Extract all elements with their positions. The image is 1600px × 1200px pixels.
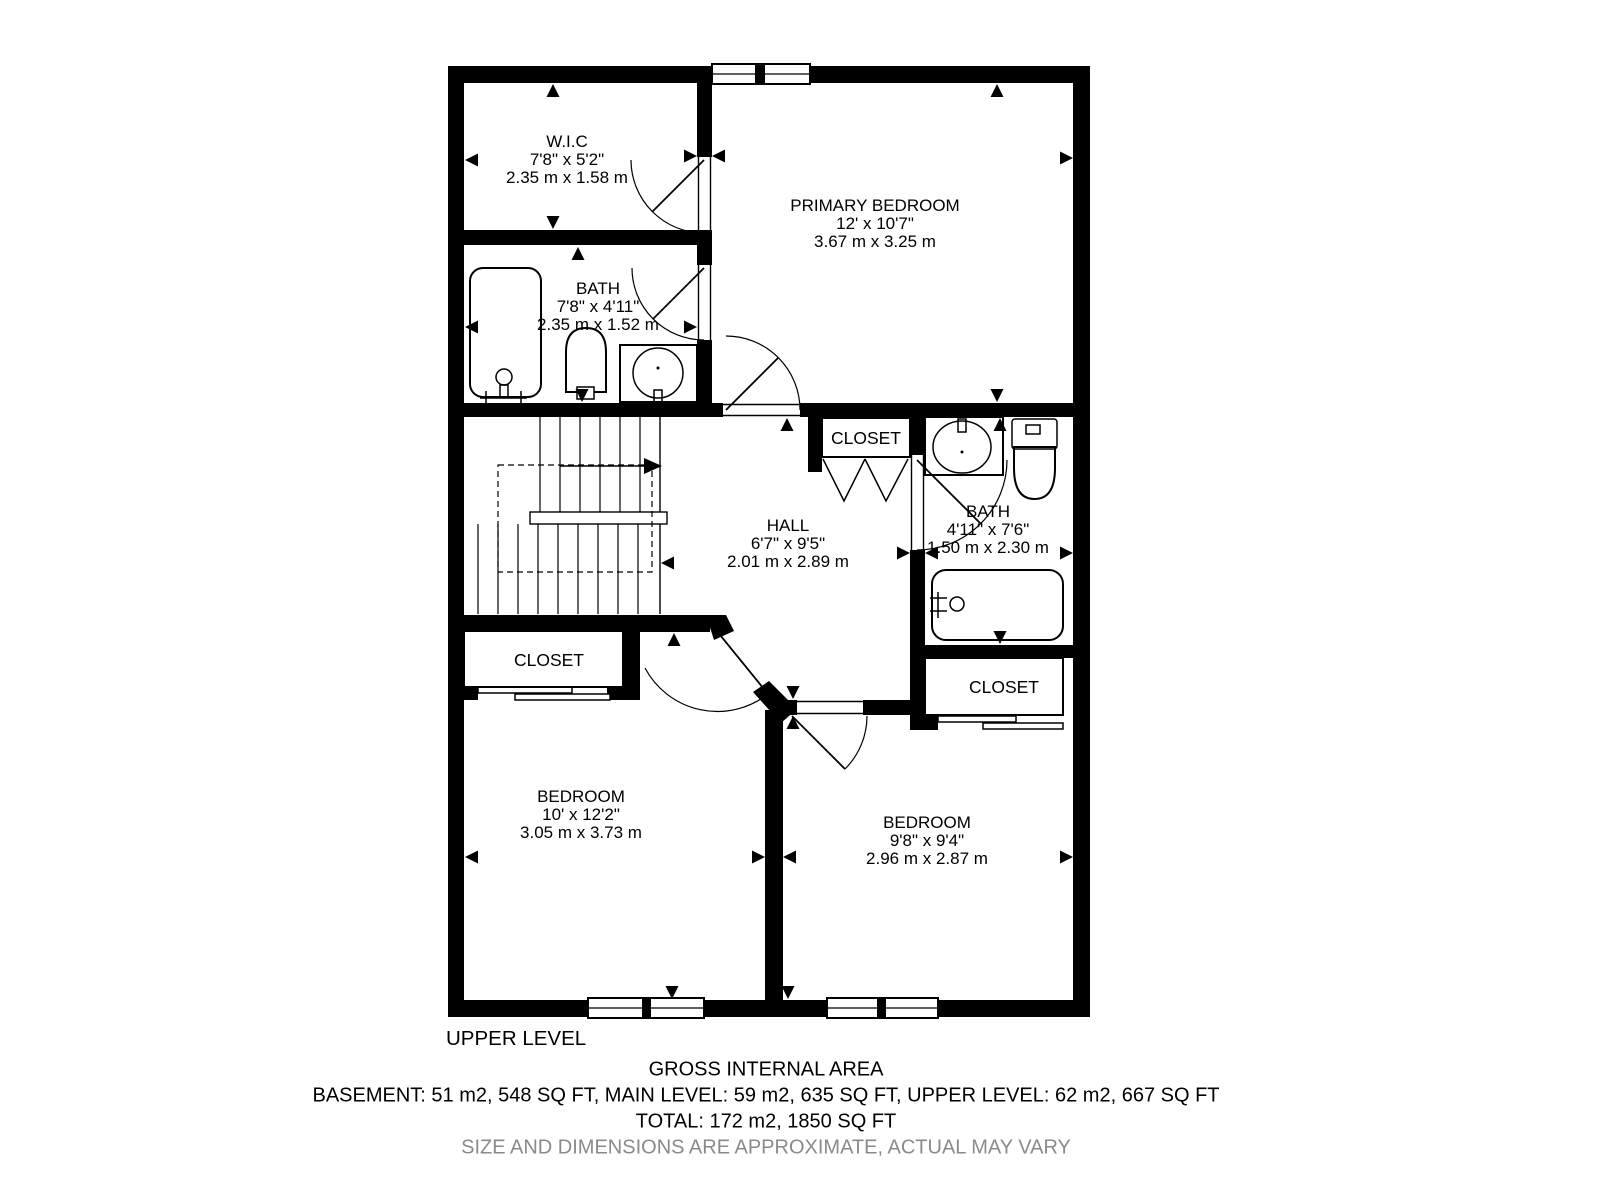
sliding-door-right-closet [938,716,1063,729]
bathtub-icon [930,570,1063,640]
room-dimensions-metric: 2.35 m x 1.52 m [537,316,659,334]
toilet-icon [1012,419,1057,499]
room-label-bath-upper: BATH 7'8" x 4'11" 2.35 m x 1.52 m [537,280,659,334]
toilet-icon [566,328,606,399]
window-bottom-left [588,998,704,1018]
closet-label-left-bedroom: CLOSET [514,651,584,669]
room-name: BATH [927,503,1049,521]
disclaimer-line: SIZE AND DIMENSIONS ARE APPROXIMATE, ACT… [461,1137,1071,1160]
total-area-line: TOTAL: 172 m2, 1850 SQ FT [636,1111,896,1134]
room-dimensions-metric: 2.35 m x 1.58 m [506,169,628,187]
room-dimensions-metric: 1.50 m x 2.30 m [927,539,1049,557]
room-dimensions-metric: 3.67 m x 3.25 m [790,233,959,251]
room-dimensions-metric: 2.01 m x 2.89 m [727,553,849,571]
gross-internal-area-title: GROSS INTERNAL AREA [649,1059,884,1082]
room-name: W.I.C [506,133,628,151]
room-label-hall: HALL 6'7" x 9'5" 2.01 m x 2.89 m [727,517,849,571]
stairs-icon [478,417,667,614]
room-name: BATH [537,280,659,298]
sink-icon [925,417,1003,475]
room-label-wic: W.I.C 7'8" x 5'2" 2.35 m x 1.58 m [506,133,628,187]
door-bedroom-right [792,716,867,769]
window-top [712,64,810,84]
level-label: UPPER LEVEL [446,1027,586,1051]
room-dimensions-imperial: 7'8" x 4'11" [537,298,659,316]
room-dimensions-metric: 3.05 m x 3.73 m [520,824,642,842]
bathtub-icon [470,268,541,405]
closet-label-right-bedroom: CLOSET [969,678,1039,696]
floor-plan-page: W.I.C 7'8" x 5'2" 2.35 m x 1.58 m PRIMAR… [0,0,1600,1200]
room-label-primary-bedroom: PRIMARY BEDROOM 12' x 10'7" 3.67 m x 3.2… [790,197,959,251]
room-dimensions-imperial: 7'8" x 5'2" [506,151,628,169]
room-dimensions-imperial: 6'7" x 9'5" [727,535,849,553]
bifold-door-hall-closet [823,459,908,501]
sink-icon [620,345,697,402]
room-name: BEDROOM [520,788,642,806]
window-bottom-right [827,998,938,1018]
room-label-bath-right: BATH 4'11" x 7'6" 1.50 m x 2.30 m [927,503,1049,557]
room-dimensions-imperial: 12' x 10'7" [790,215,959,233]
door-bedroom-left [645,630,768,711]
closet-label-hall: CLOSET [831,429,901,447]
floor-plan-drawing [0,0,1600,1200]
room-label-bedroom-right: BEDROOM 9'8" x 9'4" 2.96 m x 2.87 m [866,814,988,868]
door-primary-bedroom [726,336,800,410]
door-wic [631,160,704,233]
room-dimensions-imperial: 4'11" x 7'6" [927,521,1049,539]
room-dimensions-imperial: 9'8" x 9'4" [866,832,988,850]
room-dimensions-metric: 2.96 m x 2.87 m [866,850,988,868]
room-name: HALL [727,517,849,535]
area-breakdown-line: BASEMENT: 51 m2, 548 SQ FT, MAIN LEVEL: … [312,1085,1219,1108]
room-label-bedroom-left: BEDROOM 10' x 12'2" 3.05 m x 3.73 m [520,788,642,842]
room-dimensions-imperial: 10' x 12'2" [520,806,642,824]
room-name: BEDROOM [866,814,988,832]
stairs-direction-arrow [560,458,662,474]
room-name: PRIMARY BEDROOM [790,197,959,215]
sliding-door-left-closet [478,687,610,700]
